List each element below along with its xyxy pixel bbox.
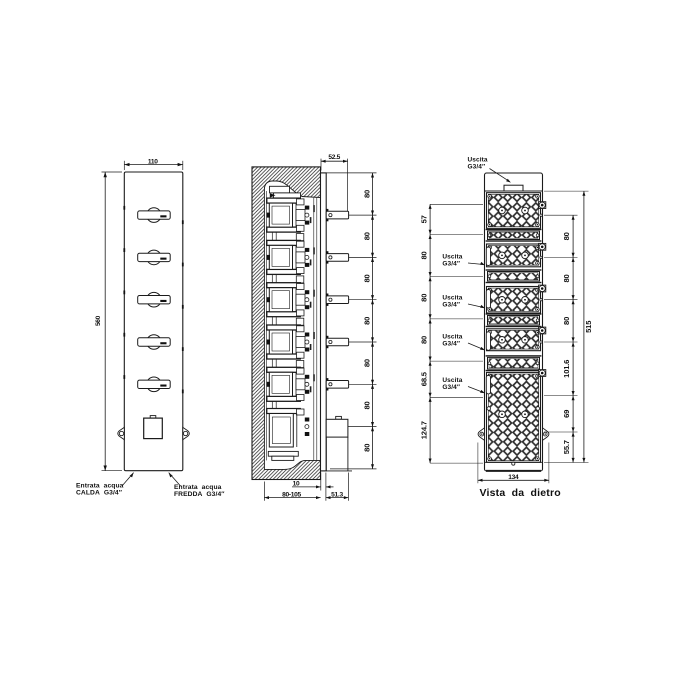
svg-text:80: 80 (419, 336, 428, 344)
svg-text:Vista da dietro: Vista da dietro (480, 487, 561, 499)
svg-text:G3/4″: G3/4″ (442, 261, 460, 268)
svg-text:57: 57 (419, 215, 428, 223)
svg-text:80: 80 (362, 444, 371, 452)
svg-text:55.7: 55.7 (562, 440, 571, 454)
svg-text:124.7: 124.7 (419, 421, 428, 439)
svg-text:80: 80 (419, 251, 428, 259)
svg-text:560: 560 (95, 315, 102, 326)
svg-text:Uscita: Uscita (442, 295, 462, 302)
svg-text:80: 80 (362, 232, 371, 240)
svg-text:CALDA G3/4″: CALDA G3/4″ (76, 490, 123, 497)
svg-text:80: 80 (562, 274, 571, 282)
svg-text:515: 515 (584, 320, 593, 333)
svg-text:80: 80 (562, 232, 571, 240)
svg-text:80: 80 (362, 401, 371, 409)
svg-text:G3/4″: G3/4″ (442, 302, 460, 309)
svg-text:80: 80 (419, 294, 428, 302)
svg-text:134: 134 (508, 474, 519, 481)
svg-text:80: 80 (362, 359, 371, 367)
svg-text:69: 69 (562, 410, 571, 418)
svg-text:Uscita: Uscita (468, 157, 488, 164)
svg-text:G3/4″: G3/4″ (468, 164, 486, 171)
svg-text:80: 80 (562, 317, 571, 325)
svg-text:68.5: 68.5 (419, 371, 428, 386)
svg-text:Entrata acqua: Entrata acqua (76, 483, 124, 490)
svg-text:80: 80 (362, 317, 371, 325)
svg-text:101.6: 101.6 (562, 360, 571, 378)
svg-text:Uscita: Uscita (442, 334, 462, 341)
svg-text:10: 10 (293, 480, 300, 487)
svg-text:51.3: 51.3 (331, 491, 343, 498)
svg-text:80: 80 (362, 274, 371, 282)
svg-text:110: 110 (148, 159, 158, 166)
svg-text:80-105: 80-105 (282, 491, 301, 498)
svg-text:G3/4″: G3/4″ (442, 341, 460, 348)
svg-text:52.5: 52.5 (328, 154, 340, 161)
svg-text:Uscita: Uscita (442, 254, 462, 261)
svg-text:80: 80 (362, 190, 371, 198)
svg-text:FREDDA G3/4″: FREDDA G3/4″ (174, 491, 225, 498)
svg-text:Entrata acqua: Entrata acqua (174, 484, 222, 491)
svg-text:G3/4″: G3/4″ (442, 384, 460, 391)
svg-text:Uscita: Uscita (442, 377, 462, 384)
